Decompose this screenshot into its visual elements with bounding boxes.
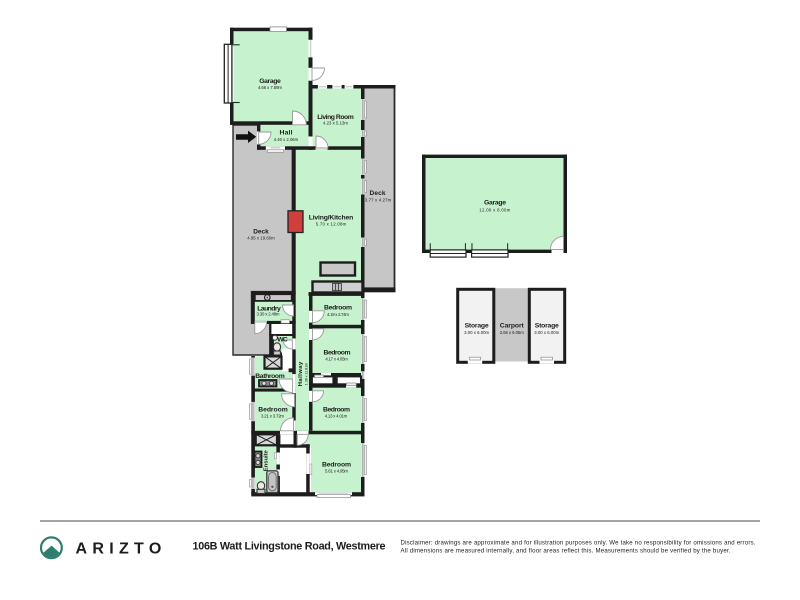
svg-text:Storage: Storage [465, 323, 489, 330]
svg-text:Living/Kitchen: Living/Kitchen [309, 214, 354, 221]
svg-text:Ensuite: Ensuite [264, 449, 270, 471]
svg-text:3.00 x 6.00m: 3.00 x 6.00m [464, 330, 489, 335]
svg-text:Hall: Hall [280, 129, 293, 136]
svg-text:4.13 x 4.01m: 4.13 x 4.01m [325, 414, 348, 419]
svg-text:Carport: Carport [500, 323, 525, 330]
svg-text:Bathroom: Bathroom [255, 373, 285, 380]
svg-text:1.38 x 11.81m: 1.38 x 11.81m [305, 363, 309, 386]
svg-text:2.65 x 6.05m: 2.65 x 6.05m [500, 330, 524, 335]
svg-text:Bedroom: Bedroom [258, 406, 288, 413]
svg-text:4.17 x 4.05m: 4.17 x 4.05m [325, 357, 348, 362]
svg-text:5.70 x 12.08m: 5.70 x 12.08m [316, 222, 347, 227]
svg-text:3.30 x 2.48m: 3.30 x 2.48m [257, 311, 280, 316]
svg-text:5.61 x 4.95m: 5.61 x 4.95m [325, 469, 348, 474]
svg-text:4.40 x 2.06m: 4.40 x 2.06m [274, 137, 299, 142]
svg-text:106B Watt Livingstone Road, We: 106B Watt Livingstone Road, Westmere [193, 541, 386, 553]
svg-text:ARIZTO: ARIZTO [76, 541, 167, 558]
svg-text:12.00 x 8.00m: 12.00 x 8.00m [479, 208, 510, 213]
svg-text:Hallway: Hallway [298, 361, 304, 386]
svg-text:4.95 x 19.60m: 4.95 x 19.60m [247, 236, 275, 241]
svg-text:4.66 x 7.89m: 4.66 x 7.89m [258, 85, 282, 90]
svg-text:4.23 x 5.13m: 4.23 x 5.13m [323, 121, 348, 126]
svg-text:Storage: Storage [535, 323, 559, 330]
svg-text:3.21 x 3.72m: 3.21 x 3.72m [261, 413, 284, 418]
svg-text:Bedroom: Bedroom [324, 305, 352, 312]
svg-text:WC: WC [277, 336, 288, 343]
svg-text:All dimensions are measured in: All dimensions are measured internally, … [401, 547, 731, 554]
svg-text:Garage: Garage [484, 200, 506, 207]
svg-text:Disclaimer: drawings are appro: Disclaimer: drawings are approximate and… [401, 540, 756, 547]
svg-text:3.00 x 6.00m: 3.00 x 6.00m [534, 330, 559, 335]
svg-text:Deck: Deck [370, 190, 386, 197]
svg-text:Deck: Deck [253, 228, 269, 235]
svg-text:4.19 x 2.74m: 4.19 x 2.74m [327, 312, 349, 317]
svg-text:3.77 x 4.27m: 3.77 x 4.27m [365, 197, 392, 202]
